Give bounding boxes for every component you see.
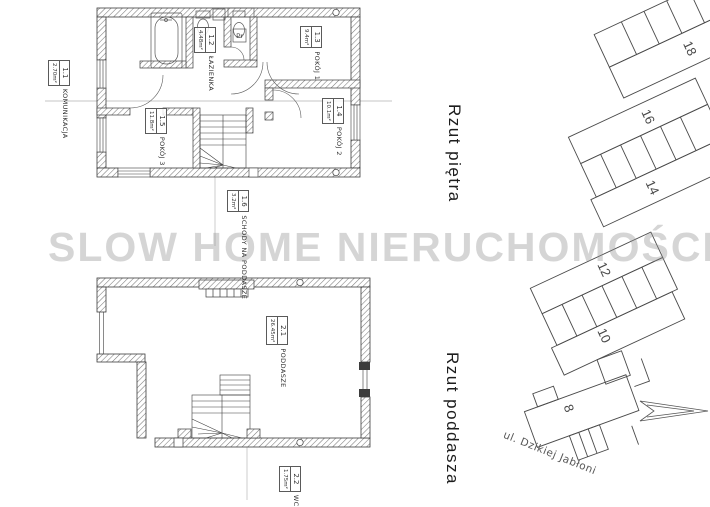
room-tag: 1.6 3.2m² — [227, 190, 249, 212]
room-tag: 1.3 9.4m² — [300, 26, 322, 48]
plot-number: 18 — [680, 39, 700, 58]
room-area: 4.48m² — [195, 28, 205, 52]
room-number: 2.2 — [290, 467, 300, 491]
room-area: 3.2m² — [228, 191, 238, 211]
attic-walls — [97, 278, 370, 447]
room-number: 2.1 — [277, 317, 287, 344]
north-arrow-icon — [640, 401, 708, 421]
room-name: KOMUNIKACJA — [60, 89, 69, 139]
room-name: POKÓJ 2 — [334, 127, 343, 156]
room-tag: 2.1 26.45m² — [266, 316, 288, 345]
room-area: 11.8m² — [146, 109, 156, 133]
stairs-attic — [192, 375, 250, 438]
room-name: WC — [291, 495, 300, 507]
attic-plan-title: Rzut poddasza — [442, 352, 462, 485]
room-tag: 2.2 1.75m² — [279, 466, 301, 492]
room-area: 10.1m² — [323, 99, 333, 123]
bathtub — [151, 13, 182, 68]
building-8: 8 — [516, 345, 668, 477]
room-tag: 1.2 4.48m² — [194, 27, 216, 53]
plot-number: 14 — [643, 178, 663, 197]
room-number: 1.1 — [59, 61, 69, 85]
plot-number: 10 — [594, 326, 614, 345]
room-area: 9.4m² — [301, 27, 311, 47]
stairs-upper — [200, 115, 246, 168]
room-number: 1.3 — [311, 27, 321, 47]
room-number: 1.6 — [238, 191, 248, 211]
room-area: 2.70m² — [49, 61, 59, 85]
room-number: 1.2 — [205, 28, 215, 52]
watermark-text: SLOW HOME NIERUCHOMOŚCI — [48, 224, 710, 271]
room-label-1-4: 1.4 10.1m² POKÓJ 2 — [322, 98, 344, 156]
plot-number: 16 — [638, 107, 658, 126]
room-name: POKÓJ 3 — [157, 137, 166, 166]
floor-plan-page: { "watermark": "SLOW HOME NIERUCHOMOŚCI"… — [0, 0, 710, 500]
room-label-1-3: 1.3 9.4m² POKÓJ 1 — [300, 26, 322, 80]
room-label-2-1: 2.1 26.45m² PODDASZE — [266, 316, 288, 388]
building-16-14: 16 14 — [563, 78, 710, 227]
room-number: 1.4 — [333, 99, 343, 123]
room-area: 1.75m² — [280, 467, 290, 491]
room-name: PODDASZE — [278, 348, 287, 387]
room-name: SCHODY NA PODDASZE — [239, 215, 248, 299]
room-name: ŁAZIENKA — [206, 56, 215, 91]
room-tag: 1.4 10.1m² — [322, 98, 344, 124]
room-area: 26.45m² — [267, 317, 277, 344]
room-label-1-1: 1.1 2.70m² KOMUNIKACJA — [48, 60, 70, 139]
stair-posts — [178, 429, 260, 438]
wall-markers — [359, 362, 370, 397]
room-name: POKÓJ 1 — [312, 51, 321, 80]
room-label-1-6: 1.6 3.2m² SCHODY NA PODDASZE — [227, 190, 249, 299]
upper-plan-title: Rzut piętra — [444, 104, 464, 203]
room-label-1-2: 1.2 4.48m² ŁAZIENKA — [194, 27, 216, 91]
plot-number: 8 — [561, 402, 578, 414]
room-label-1-5: 1.5 11.8m² POKÓJ 3 — [145, 108, 167, 166]
room-label-2-2: 2.2 1.75m² WC — [279, 466, 301, 507]
room-tag: 1.1 2.70m² — [48, 60, 70, 86]
room-tag: 1.5 11.8m² — [145, 108, 167, 134]
attic-floor-plan — [0, 270, 470, 500]
building-18: 18 — [594, 0, 710, 98]
room-number: 1.5 — [156, 109, 166, 133]
washer-label: Pr — [236, 33, 243, 40]
